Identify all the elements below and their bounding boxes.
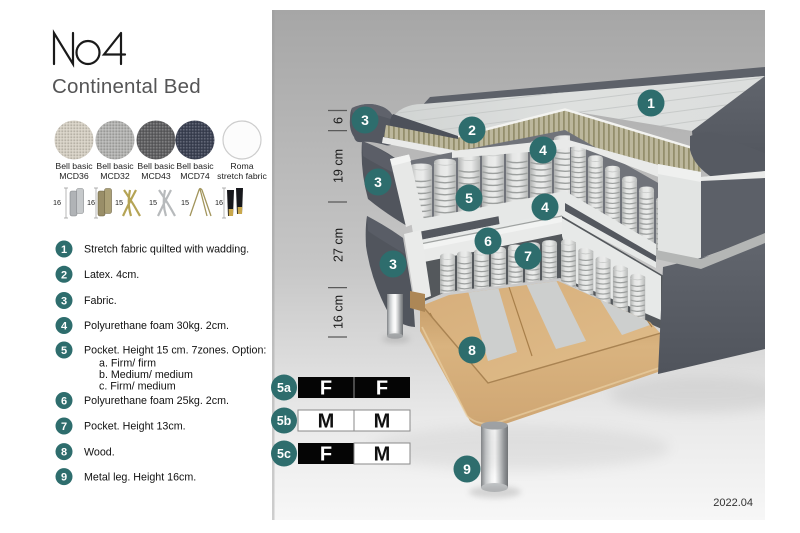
svg-text:16: 16 — [53, 198, 61, 207]
svg-text:4: 4 — [541, 199, 549, 215]
svg-text:MCD32: MCD32 — [100, 171, 130, 181]
svg-text:5b: 5b — [277, 414, 292, 428]
svg-text:6: 6 — [331, 117, 345, 124]
svg-text:8: 8 — [61, 447, 67, 459]
svg-text:c. Firm/ medium: c. Firm/ medium — [99, 381, 176, 393]
svg-text:Bell basic: Bell basic — [176, 161, 214, 171]
svg-text:5: 5 — [465, 190, 473, 206]
svg-text:1: 1 — [61, 244, 67, 256]
svg-text:16: 16 — [215, 198, 223, 207]
svg-text:2022.04: 2022.04 — [713, 497, 753, 509]
svg-text:16: 16 — [87, 198, 95, 207]
svg-text:Bell basic: Bell basic — [137, 161, 175, 171]
svg-text:9: 9 — [61, 472, 67, 484]
svg-text:MCD74: MCD74 — [180, 171, 210, 181]
svg-text:Wood.: Wood. — [84, 446, 115, 458]
svg-text:Pocket. Height 13cm.: Pocket. Height 13cm. — [84, 421, 186, 433]
svg-text:5: 5 — [61, 345, 67, 357]
svg-text:Polyurethane foam 25kg. 2cm.: Polyurethane foam 25kg. 2cm. — [84, 395, 229, 407]
svg-text:Stretch fabric quilted with wa: Stretch fabric quilted with wadding. — [84, 244, 249, 256]
svg-text:15: 15 — [115, 198, 123, 207]
svg-text:Fabric.: Fabric. — [84, 295, 117, 307]
svg-text:Continental Bed: Continental Bed — [52, 75, 201, 98]
svg-text:Polyurethane foam 30kg. 2cm.: Polyurethane foam 30kg. 2cm. — [84, 320, 229, 332]
svg-text:3: 3 — [361, 112, 369, 128]
svg-text:MCD36: MCD36 — [59, 171, 89, 181]
svg-text:15: 15 — [181, 198, 189, 207]
svg-text:1: 1 — [647, 95, 655, 111]
svg-text:6: 6 — [61, 396, 67, 408]
svg-text:7: 7 — [61, 421, 67, 433]
svg-text:Latex. 4cm.: Latex. 4cm. — [84, 269, 139, 281]
svg-text:8: 8 — [468, 342, 476, 358]
svg-text:16 cm: 16 cm — [331, 295, 345, 329]
svg-text:6: 6 — [484, 233, 492, 249]
svg-text:3: 3 — [61, 296, 67, 308]
svg-text:2: 2 — [61, 269, 67, 281]
svg-text:5c: 5c — [277, 447, 291, 461]
svg-text:15: 15 — [149, 198, 157, 207]
svg-text:5a: 5a — [277, 381, 292, 395]
svg-text:2: 2 — [468, 122, 476, 138]
svg-text:MCD43: MCD43 — [141, 171, 171, 181]
svg-text:9: 9 — [463, 461, 471, 477]
svg-text:7: 7 — [524, 248, 532, 264]
svg-text:3: 3 — [389, 256, 397, 272]
svg-text:Pocket. Height 15 cm. 7zones.: Pocket. Height 15 cm. 7zones. Option: — [84, 345, 266, 357]
svg-text:Bell basic: Bell basic — [96, 161, 134, 171]
svg-text:19 cm: 19 cm — [331, 149, 345, 183]
svg-text:4: 4 — [539, 142, 547, 158]
svg-text:F: F — [320, 378, 332, 400]
svg-text:3: 3 — [374, 174, 382, 190]
svg-text:stretch fabric: stretch fabric — [217, 171, 267, 181]
svg-text:Metal leg. Height 16cm.: Metal leg. Height 16cm. — [84, 471, 196, 483]
svg-text:b. Medium/ medium: b. Medium/ medium — [99, 369, 193, 381]
svg-text:Bell basic: Bell basic — [55, 161, 93, 171]
svg-text:F: F — [376, 378, 388, 400]
svg-text:F: F — [320, 444, 332, 466]
svg-text:a. Firm/ firm: a. Firm/ firm — [99, 358, 156, 370]
svg-text:Roma: Roma — [230, 161, 253, 171]
svg-text:27 cm: 27 cm — [331, 228, 345, 262]
svg-text:M: M — [318, 411, 335, 433]
svg-text:4: 4 — [61, 321, 68, 333]
svg-text:M: M — [374, 411, 391, 433]
svg-text:M: M — [374, 444, 391, 466]
